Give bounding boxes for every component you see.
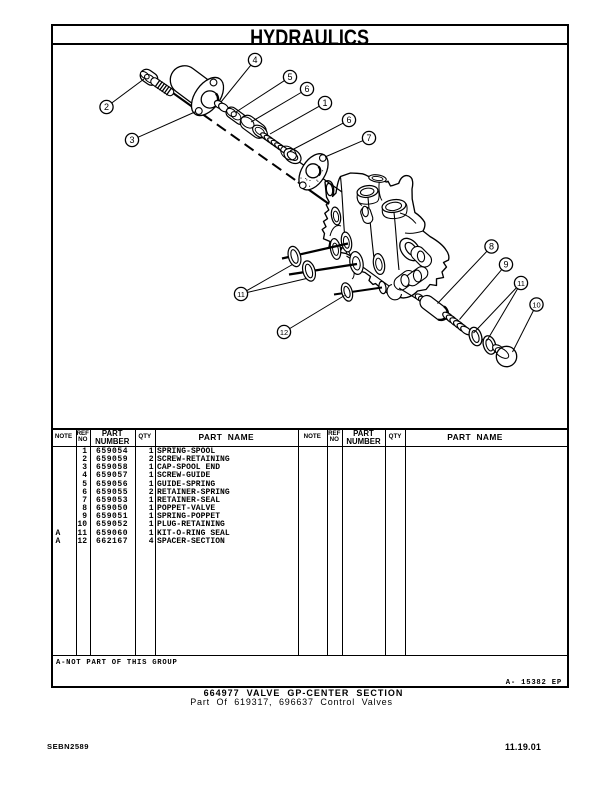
- svg-text:10: 10: [532, 301, 540, 310]
- svg-text:2: 2: [104, 102, 109, 112]
- svg-text:5: 5: [287, 72, 292, 82]
- svg-text:7: 7: [366, 133, 371, 143]
- svg-text:12: 12: [280, 328, 288, 337]
- svg-text:6: 6: [346, 115, 351, 125]
- svg-text:11: 11: [237, 290, 245, 299]
- svg-text:6: 6: [304, 84, 309, 94]
- svg-text:9: 9: [503, 260, 508, 270]
- svg-text:4: 4: [252, 55, 257, 65]
- svg-text:11: 11: [517, 279, 525, 288]
- svg-text:1: 1: [322, 98, 327, 108]
- svg-text:8: 8: [489, 242, 494, 252]
- svg-text:3: 3: [129, 135, 134, 145]
